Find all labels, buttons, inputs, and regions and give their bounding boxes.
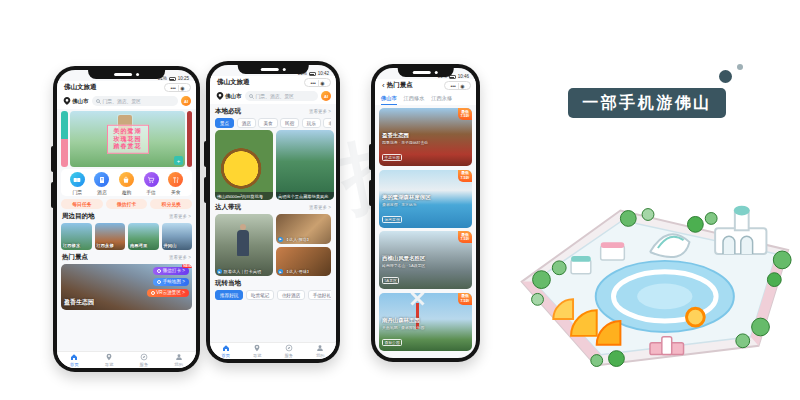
decor-dot-large bbox=[719, 70, 732, 83]
nearby-section-header: 周边目的地 查看更多 > bbox=[62, 212, 191, 221]
section-title: 本地必玩 bbox=[215, 107, 241, 116]
featured-attraction-card[interactable]: 微信打卡 > NEW 手绘地图 > VR云游景区 > 盈香生态园 bbox=[61, 264, 192, 310]
quick-action-label: 酒店 bbox=[97, 189, 107, 195]
speaker-slot bbox=[260, 68, 278, 71]
attraction-desc: 四季花海 · 亲子游玩好去处 bbox=[382, 140, 428, 145]
badge-line-1: 最低 bbox=[461, 171, 469, 175]
quick-action-souvenir[interactable]: 手信 bbox=[144, 172, 159, 195]
home-icon bbox=[222, 344, 230, 352]
banner-caption-box: 美的鹭湖 玫瑰花园 踏春赏花 bbox=[107, 125, 149, 154]
tab-guide[interactable]: 导览 bbox=[242, 344, 274, 358]
tab-services[interactable]: 服务 bbox=[273, 344, 305, 358]
battery-icon bbox=[169, 77, 176, 81]
compass-icon bbox=[140, 353, 148, 361]
promo-buttons-row: 每日任务 微信打卡 积分兑换 bbox=[61, 199, 192, 209]
city-label[interactable]: 佛山市 bbox=[72, 98, 89, 105]
quick-actions-row: 门票 酒店 趣购 手信 美食 bbox=[61, 169, 192, 196]
tab-profile[interactable]: 我的 bbox=[305, 344, 337, 358]
phone1-notch bbox=[88, 70, 166, 79]
local-chips: 推荐好玩 吃货笔记 住好酒店 手信好礼 bbox=[215, 290, 331, 300]
miniprogram-capsule[interactable]: ••• ◉ bbox=[304, 78, 331, 87]
must-play-header: 本地必玩 查看更多 > bbox=[215, 107, 331, 116]
chip-food[interactable]: 美食 bbox=[258, 118, 277, 128]
play-icon: ▶ bbox=[217, 269, 222, 274]
attraction-name: 盈香生态园 bbox=[382, 132, 428, 139]
quick-action-shopping[interactable]: 趣购 bbox=[119, 172, 134, 195]
tab-label: 首页 bbox=[70, 362, 79, 367]
attraction-name: 南丹山森林王国 bbox=[382, 317, 424, 324]
phone2-navbar: 佛山文旅通 ••• ◉ bbox=[210, 76, 336, 89]
nearby-cards-row: 江西修水 江西永修 南昌湾里 井冈山 bbox=[61, 223, 192, 250]
park-illustration bbox=[502, 132, 798, 372]
app-title: 佛山文旅通 bbox=[217, 78, 250, 87]
phone2-screen: 80% 10:42 佛山文旅通 ••• ◉ 佛山市 门票、酒店、景区 AI bbox=[210, 65, 336, 359]
phone3-navbar: ‹ 热门景点 ••• ◉ bbox=[375, 79, 476, 92]
page-title: 热门景点 bbox=[387, 81, 413, 90]
tab-foshan[interactable]: 佛山市 bbox=[381, 95, 397, 105]
vr-tour-badge[interactable]: VR云游景区 > bbox=[147, 289, 189, 298]
card-caption: 【达人·探店】 bbox=[285, 237, 312, 242]
attraction-desc: 森林度假 · 亲水玩乐 bbox=[382, 202, 431, 207]
close-circle-icon[interactable]: ◉ bbox=[320, 80, 324, 86]
tab-label: 服务 bbox=[140, 362, 149, 367]
camera-dot bbox=[136, 73, 139, 76]
badge-line-2: 7.5折 bbox=[460, 237, 469, 241]
view-more-link[interactable]: 查看更多 > bbox=[169, 255, 191, 260]
chip-attractions[interactable]: 景点 bbox=[215, 118, 234, 128]
location-pin-icon bbox=[216, 92, 224, 100]
must-play-cards: 佛山45000m²向日葵花海 高明这个景点藏着绝美风光 bbox=[215, 130, 331, 200]
phone2-search-row: 佛山市 门票、酒店、景区 AI bbox=[210, 89, 336, 104]
daily-task-button[interactable]: 每日任务 bbox=[61, 199, 103, 209]
daren-card-3[interactable]: ▶ 【达人·寻味】 bbox=[276, 247, 331, 277]
badge-label: VR云游景区 > bbox=[156, 290, 185, 295]
ai-label: AI bbox=[324, 94, 328, 99]
phone1-search-row: 佛山市 门票、酒店、景区 AI bbox=[57, 94, 196, 109]
wechat-checkin-badge[interactable]: 微信打卡 > NEW bbox=[153, 267, 189, 276]
quick-action-food[interactable]: 美食 bbox=[168, 172, 183, 195]
tab-label: 我的 bbox=[174, 362, 183, 367]
attraction-name: 西樵山风景名胜区 bbox=[382, 255, 425, 262]
card-caption: 【达人·寻味】 bbox=[285, 269, 312, 274]
shopping-bag-icon bbox=[122, 176, 130, 184]
quick-action-label: 美食 bbox=[171, 189, 181, 195]
attraction-card[interactable]: 最低 7.5折 西樵山风景名胜区 岭南理学名山 · 5A级景区 5A景区 bbox=[379, 231, 472, 289]
attraction-tag: 生态乐园 bbox=[382, 154, 402, 161]
attraction-card[interactable]: 最低 7.5折 盈香生态园 四季花海 · 亲子游玩好去处 生态乐园 bbox=[379, 108, 472, 166]
hero-banner-image[interactable]: 美的鹭湖 玫瑰花园 踏春赏花 + bbox=[70, 111, 185, 167]
phone1-navbar: 佛山文旅通 ••• ◉ bbox=[57, 81, 196, 94]
discount-badge: 最低 7.5折 bbox=[458, 170, 472, 182]
tab-jiangxi-yongxiu[interactable]: 江西永修 bbox=[431, 95, 452, 104]
more-dots-icon[interactable]: ••• bbox=[170, 85, 175, 91]
play-icon: ▶ bbox=[278, 237, 283, 242]
destination-label: 江西永修 bbox=[97, 243, 114, 248]
capsule-divider bbox=[458, 83, 459, 89]
miniprogram-capsule[interactable]: ••• ◉ bbox=[444, 81, 471, 90]
attraction-desc: 天然氧吧 · 森林探险乐园 bbox=[382, 325, 424, 330]
speaker-slot bbox=[413, 71, 431, 74]
phone3-screen: 80% 10:46 ‹ 热门景点 ••• ◉ 佛山市 江西修水 江西永修 最低 bbox=[375, 68, 476, 358]
section-title: 周边目的地 bbox=[62, 212, 95, 221]
sunflower-card[interactable]: 佛山45000m²向日葵花海 bbox=[215, 130, 273, 200]
chip-crafts[interactable]: 非遗手作 bbox=[323, 118, 331, 128]
hand-drawn-map-badge[interactable]: 手绘地图 > bbox=[153, 278, 189, 287]
attraction-card[interactable]: 最低 7.5折 美的鹭湖森林度假区 森林度假 · 亲水玩乐 休闲度假 bbox=[379, 170, 472, 228]
location-pin-icon bbox=[63, 97, 71, 105]
tab-label: 服务 bbox=[284, 353, 293, 358]
attraction-name: 美的鹭湖森林度假区 bbox=[382, 194, 431, 201]
capsule-divider bbox=[178, 85, 179, 91]
badge-dot-icon bbox=[157, 280, 161, 284]
camera-dot bbox=[435, 71, 438, 74]
destination-label: 江西修水 bbox=[63, 243, 80, 248]
search-icon bbox=[249, 94, 254, 99]
carousel-prev-sliver[interactable] bbox=[61, 111, 68, 167]
attraction-tag: 5A景区 bbox=[382, 277, 399, 284]
section-title: 热门景点 bbox=[62, 253, 88, 262]
chip-foodie-notes[interactable]: 吃货笔记 bbox=[246, 290, 274, 300]
card-caption: 跟着达人｜打卡高明 bbox=[224, 269, 262, 274]
new-tag: NEW bbox=[182, 264, 192, 268]
clock-time: 10:25 bbox=[178, 76, 189, 81]
tab-guide[interactable]: 导览 bbox=[92, 353, 127, 367]
card-caption: 佛山45000m²向日葵花海 bbox=[215, 192, 273, 200]
ai-assistant-button[interactable]: AI bbox=[181, 96, 191, 106]
daren-card-2[interactable]: ▶ 【达人·探店】 bbox=[276, 214, 331, 244]
points-redeem-button[interactable]: 积分兑换 bbox=[150, 199, 192, 209]
miniprogram-capsule[interactable]: ••• ◉ bbox=[164, 83, 191, 92]
destination-card[interactable]: 江西修水 bbox=[61, 223, 92, 250]
person-graphic bbox=[237, 230, 249, 256]
phone2-tabbar: 首页 导览 服务 我的 bbox=[210, 342, 336, 359]
destination-label: 井冈山 bbox=[164, 243, 177, 248]
banner-line-1: 美的鹭湖 bbox=[114, 128, 142, 136]
search-placeholder: 门票、酒店、景区 bbox=[256, 93, 294, 99]
badge-dot-icon bbox=[151, 291, 155, 295]
chip-gifts[interactable]: 手信好礼 bbox=[308, 290, 331, 300]
badge-label: 手绘地图 > bbox=[163, 279, 185, 284]
mountain-card[interactable]: 高明这个景点藏着绝美风光 bbox=[276, 130, 334, 200]
phone-mockup-1: 81% 10:25 佛山文旅通 ••• ◉ 佛山市 门票、酒店、景区 AI bbox=[53, 66, 200, 372]
cart-icon bbox=[147, 176, 155, 184]
banner-plus-tag[interactable]: + bbox=[174, 156, 183, 165]
attraction-tag: 森林公园 bbox=[382, 339, 402, 346]
more-dots-icon[interactable]: ••• bbox=[310, 80, 315, 86]
badge-line-2: 7.5折 bbox=[460, 299, 469, 303]
map-pin-icon bbox=[105, 353, 113, 361]
badge-line-1: 最低 bbox=[461, 110, 469, 114]
tab-profile[interactable]: 我的 bbox=[161, 353, 196, 367]
tab-label: 首页 bbox=[221, 353, 230, 358]
card-caption: 高明这个景点藏着绝美风光 bbox=[276, 192, 334, 200]
attraction-desc: 岭南理学名山 · 5A级景区 bbox=[382, 263, 425, 268]
tab-services[interactable]: 服务 bbox=[127, 353, 162, 367]
map-pin-icon bbox=[253, 344, 261, 352]
close-circle-icon[interactable]: ◉ bbox=[180, 85, 184, 91]
phone3-notch bbox=[397, 68, 454, 77]
chip-recommended[interactable]: 推荐好玩 bbox=[215, 290, 243, 300]
app-title: 佛山文旅通 bbox=[64, 83, 97, 92]
more-dots-icon[interactable]: ••• bbox=[450, 83, 455, 89]
attraction-list: 最低 7.5折 盈香生态园 四季花海 · 亲子游玩好去处 生态乐园 最低 7.5… bbox=[375, 105, 476, 351]
tab-label: 导览 bbox=[105, 362, 114, 367]
tab-home[interactable]: 首页 bbox=[57, 353, 92, 367]
destination-card[interactable]: 南昌湾里 bbox=[128, 223, 159, 250]
decor-dot-small bbox=[737, 64, 743, 70]
local-header: 玩转当地 bbox=[215, 279, 331, 288]
tab-label: 导览 bbox=[253, 353, 262, 358]
ai-label: AI bbox=[184, 99, 188, 104]
section-title: 达人带玩 bbox=[215, 203, 241, 212]
wechat-checkin-button[interactable]: 微信打卡 bbox=[106, 199, 148, 209]
ticket-icon bbox=[73, 176, 81, 184]
camera-dot bbox=[282, 68, 285, 71]
tab-label: 我的 bbox=[316, 353, 325, 358]
back-chevron-icon[interactable]: ‹ bbox=[382, 81, 385, 90]
discount-badge: 最低 7.5折 bbox=[458, 108, 472, 120]
battery-icon bbox=[309, 72, 316, 76]
quick-action-label: 手信 bbox=[146, 189, 156, 195]
capsule-divider bbox=[318, 80, 319, 86]
banner-line-2: 玫瑰花园 bbox=[114, 135, 142, 143]
city-label[interactable]: 佛山市 bbox=[225, 93, 242, 100]
discount-badge: 最低 7.5折 bbox=[458, 231, 472, 243]
daren-main-card[interactable]: ▶ 跟着达人｜打卡高明 bbox=[215, 214, 273, 276]
view-more-link[interactable]: 查看更多 > bbox=[169, 214, 191, 219]
fork-knife-icon bbox=[172, 176, 180, 184]
phone1-tabbar: 首页 导览 服务 我的 bbox=[57, 351, 196, 368]
daren-side-cards: ▶ 【达人·探店】 ▶ 【达人·寻味】 bbox=[276, 214, 331, 276]
city-selector[interactable]: 佛山市 bbox=[216, 92, 242, 100]
attraction-card[interactable]: 最低 7.5折 南丹山森林王国 天然氧吧 · 森林探险乐园 森林公园 bbox=[379, 293, 472, 351]
badge-dot-icon bbox=[157, 269, 161, 273]
compass-icon bbox=[285, 344, 293, 352]
badge-line-1: 最低 bbox=[461, 233, 469, 237]
quick-action-label: 门票 bbox=[73, 189, 83, 195]
chip-fun[interactable]: 玩乐 bbox=[302, 118, 321, 128]
phone-mockup-3: 80% 10:46 ‹ 热门景点 ••• ◉ 佛山市 江西修水 江西永修 最低 bbox=[371, 64, 480, 362]
ai-assistant-button[interactable]: AI bbox=[321, 91, 331, 101]
hero-carousel[interactable]: 美的鹭湖 玫瑰花园 踏春赏花 + bbox=[61, 111, 192, 167]
phone2-notch bbox=[238, 65, 309, 74]
person-icon bbox=[175, 353, 183, 361]
search-input[interactable]: 门票、酒店、景区 bbox=[245, 91, 319, 101]
banner-line-3: 踏春赏花 bbox=[114, 143, 142, 151]
clock-time: 10:42 bbox=[318, 71, 329, 76]
attraction-tag: 休闲度假 bbox=[382, 216, 402, 223]
home-icon bbox=[70, 353, 78, 361]
daren-cards: ▶ 跟着达人｜打卡高明 ▶ 【达人·探店】 ▶ 【达人·寻味】 bbox=[215, 214, 331, 276]
speaker-slot bbox=[114, 73, 132, 76]
phone-mockup-2: 80% 10:42 佛山文旅通 ••• ◉ 佛山市 门票、酒店、景区 AI bbox=[206, 61, 340, 363]
discount-badge: 最低 7.5折 bbox=[458, 293, 472, 305]
feature-badges: 微信打卡 > NEW 手绘地图 > VR云游景区 > bbox=[147, 267, 189, 298]
badge-line-2: 7.5折 bbox=[460, 114, 469, 118]
attraction-name: 盈香生态园 bbox=[64, 298, 94, 307]
search-placeholder: 门票、酒店、景区 bbox=[103, 98, 141, 104]
region-tabs: 佛山市 江西修水 江西永修 bbox=[375, 92, 476, 105]
daren-header: 达人带玩 查看更多 > bbox=[215, 203, 331, 212]
chip-good-hotels[interactable]: 住好酒店 bbox=[277, 290, 305, 300]
chip-hotels[interactable]: 酒店 bbox=[237, 118, 256, 128]
destination-label: 南昌湾里 bbox=[130, 243, 147, 248]
tab-jiangxi-xiushui[interactable]: 江西修水 bbox=[404, 95, 425, 104]
section-title: 玩转当地 bbox=[215, 279, 241, 288]
phone1-screen: 81% 10:25 佛山文旅通 ••• ◉ 佛山市 门票、酒店、景区 AI bbox=[57, 70, 196, 368]
destination-card[interactable]: 江西永修 bbox=[95, 223, 126, 250]
view-more-link[interactable]: 查看更多 > bbox=[309, 205, 331, 210]
category-chips: 景点 酒店 美食 民宿 玩乐 非遗手作 bbox=[215, 118, 331, 128]
person-icon bbox=[316, 344, 324, 352]
hot-section-header: 热门景点 查看更多 > bbox=[62, 253, 191, 262]
slogan-banner: 一部手机游佛山 bbox=[568, 88, 726, 118]
close-circle-icon[interactable]: ◉ bbox=[460, 83, 464, 89]
badge-line-2: 7.5折 bbox=[460, 176, 469, 180]
city-selector[interactable]: 佛山市 bbox=[63, 97, 89, 105]
chip-homestay[interactable]: 民宿 bbox=[280, 118, 299, 128]
tab-home[interactable]: 首页 bbox=[210, 344, 242, 358]
badge-line-1: 最低 bbox=[461, 294, 469, 298]
quick-action-label: 趣购 bbox=[122, 189, 132, 195]
quick-action-tickets[interactable]: 门票 bbox=[70, 172, 85, 195]
quick-action-hotel[interactable]: 酒店 bbox=[94, 172, 109, 195]
view-more-link[interactable]: 查看更多 > bbox=[309, 109, 331, 114]
badge-label: 微信打卡 > bbox=[163, 268, 185, 273]
clock-time: 10:46 bbox=[458, 74, 469, 79]
destination-card[interactable]: 井冈山 bbox=[162, 223, 193, 250]
slogan-text: 一部手机游佛山 bbox=[582, 93, 712, 114]
carousel-next-sliver[interactable] bbox=[187, 111, 192, 167]
search-icon bbox=[96, 99, 101, 104]
play-icon: ▶ bbox=[278, 269, 283, 274]
hotel-icon bbox=[98, 176, 106, 184]
search-input[interactable]: 门票、酒店、景区 bbox=[92, 96, 179, 106]
